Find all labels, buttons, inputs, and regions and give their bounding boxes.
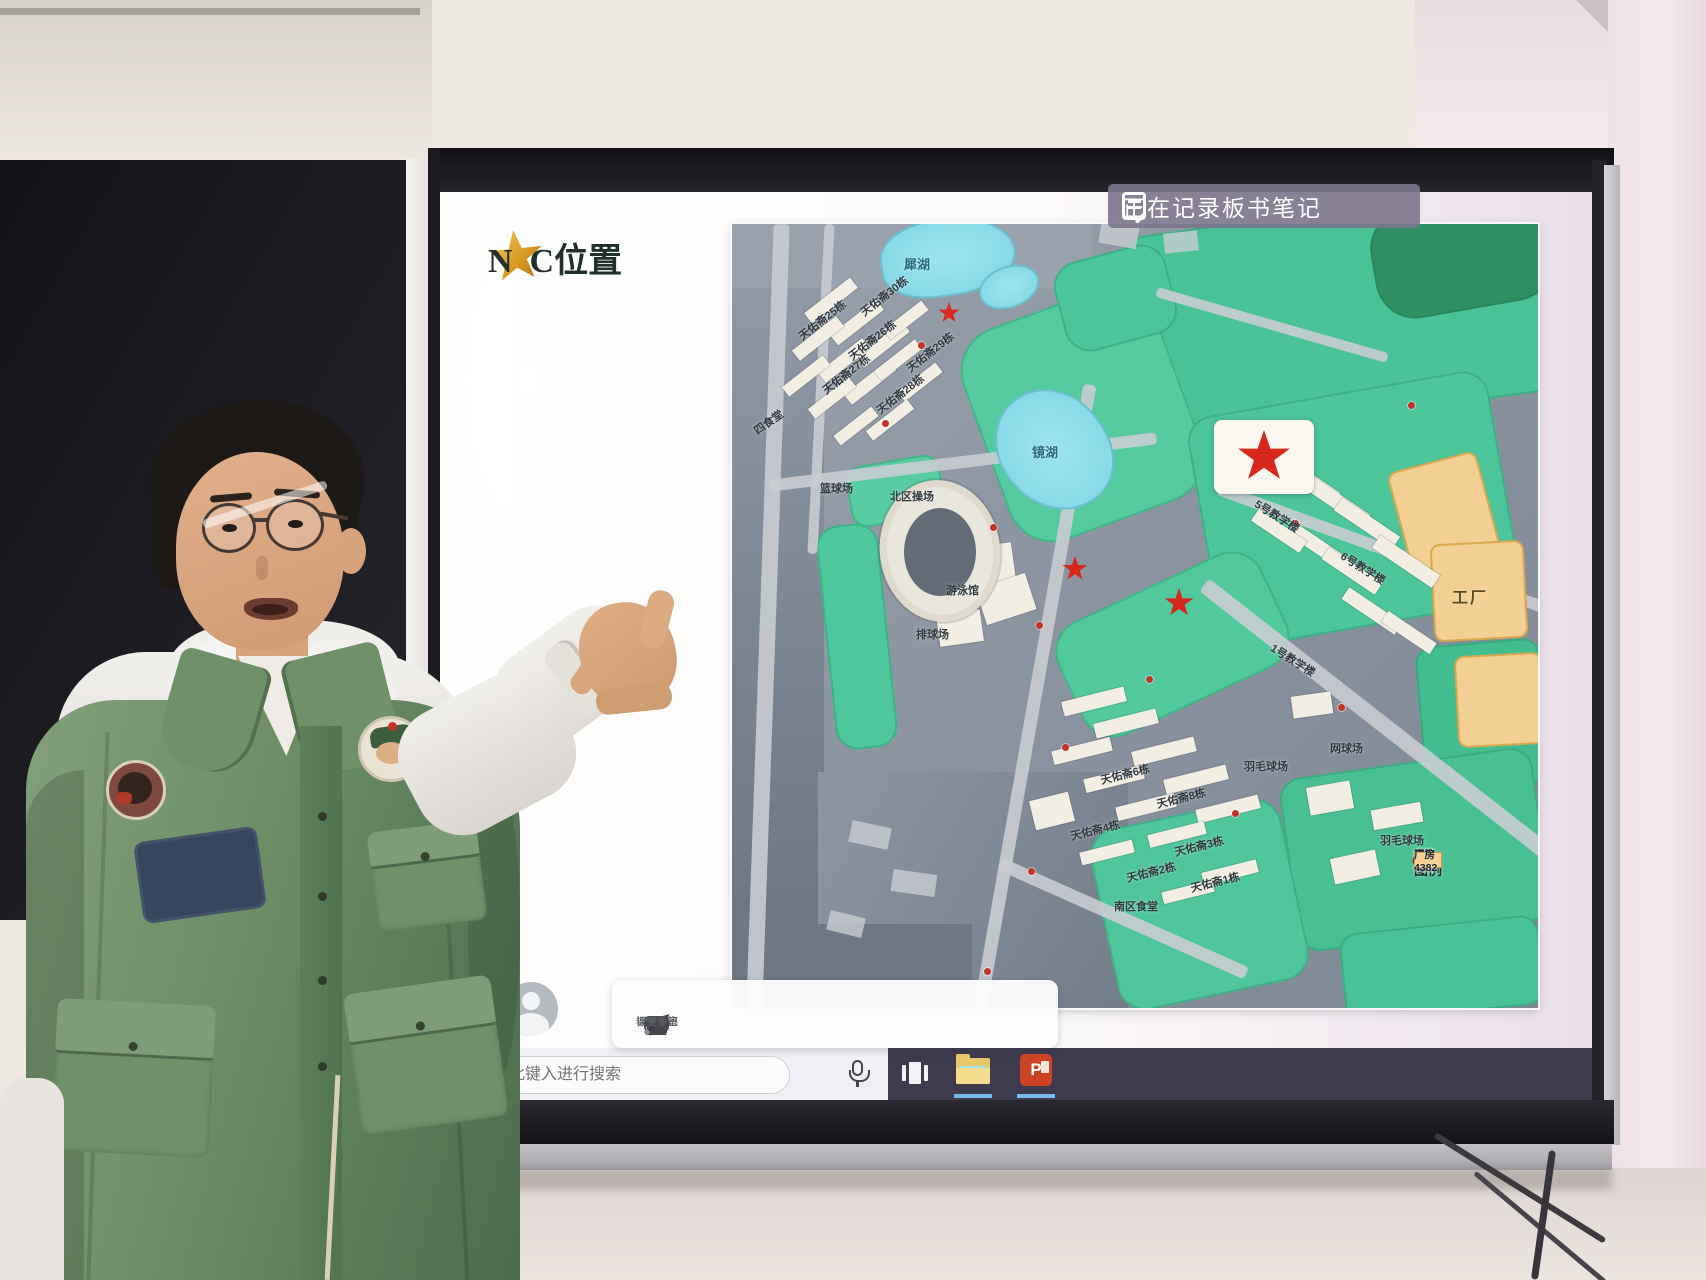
tv-shadow <box>432 1168 1612 1190</box>
taskbar <box>888 1048 1592 1100</box>
wall <box>0 0 432 170</box>
blackboard-panel <box>0 160 408 920</box>
taskbar-search[interactable] <box>478 1056 790 1094</box>
tv-bezel <box>428 148 1614 192</box>
active-app-indicator <box>954 1094 992 1098</box>
tv-bezel <box>432 1144 1612 1170</box>
map-label: 5号教学楼 <box>1252 496 1303 536</box>
powerpoint-letter: P <box>1030 1060 1041 1080</box>
vest-snap <box>318 1062 327 1071</box>
map-label: 四食堂 <box>750 406 786 438</box>
slide-title-row: N C位置 <box>488 222 808 292</box>
map-label: 天佑斋8栋 <box>1155 784 1208 812</box>
map-label: 犀湖 <box>904 254 930 273</box>
map-label: 天佑斋26栋 <box>845 316 899 363</box>
active-app-indicator <box>1017 1094 1055 1098</box>
campus-map: 犀湖镜湖篮球场北区操场游泳馆排球场网球场羽毛球场羽毛球场南区食堂四食堂工厂5号教… <box>732 224 1538 1008</box>
map-label: 南区食堂 <box>1114 898 1158 914</box>
map-label: 工厂 <box>1452 584 1488 608</box>
presenter-sleeve <box>0 1078 64 1280</box>
map-label: 网球场 <box>1330 740 1363 756</box>
wall-trim <box>0 8 420 15</box>
map-label: 天佑斋6栋 <box>1099 760 1152 788</box>
map-labels: 犀湖镜湖篮球场北区操场游泳馆排球场网球场羽毛球场羽毛球场南区食堂四食堂工厂5号教… <box>732 224 1538 1008</box>
map-label: 1号教学楼 <box>1268 640 1319 680</box>
map-label: 天佑斋4栋 <box>1069 816 1122 844</box>
map-label: 镜湖 <box>1032 442 1058 461</box>
map-label: 天佑斋1栋 <box>1189 868 1242 896</box>
task-view-icon[interactable] <box>902 1062 928 1084</box>
wall <box>1608 0 1706 1280</box>
map-label: 天佑斋3栋 <box>1173 832 1226 860</box>
toolbar-item-label: 更多 <box>647 1014 668 1029</box>
assistant-avatar[interactable] <box>504 982 558 1036</box>
map-label: 天佑斋27栋 <box>819 350 873 397</box>
search-input[interactable] <box>491 1065 731 1085</box>
map-label: 6号教学楼 <box>1338 548 1389 588</box>
map-label: 天佑斋29栋 <box>903 328 957 375</box>
vest-snap <box>318 976 327 985</box>
recording-banner-text: 正在记录板书笔记 <box>1122 189 1322 223</box>
map-label: 北区操场 <box>890 488 934 504</box>
recording-banner: 正在记录板书笔记 <box>1108 184 1420 228</box>
map-label: 游泳馆 <box>946 582 979 598</box>
map-label: 篮球场 <box>820 480 853 496</box>
map-label: 排球场 <box>916 626 949 642</box>
microphone-icon[interactable] <box>852 1060 863 1076</box>
slide-title: N C位置 <box>488 233 622 282</box>
tv-bezel <box>428 148 440 1144</box>
classroom-photo: 正在记录板书笔记 N C位置 犀湖镜湖篮球场北区操场游泳馆排球场网球场羽毛球场羽… <box>0 0 1706 1280</box>
map-label: 天佑斋28栋 <box>873 370 927 417</box>
drawstring <box>325 1075 341 1280</box>
map-label: 天佑斋2栋 <box>1125 858 1178 886</box>
legend-label: 厂房4382 <box>1414 847 1437 874</box>
powerpoint-icon[interactable]: P <box>1020 1054 1052 1086</box>
tv-bezel <box>1604 165 1620 1145</box>
file-explorer-icon[interactable] <box>956 1058 990 1084</box>
map-label: 天佑斋25栋 <box>795 296 849 343</box>
class-toolbar: 标注 板擦 聚光 课堂考察 QA 课堂问答 板书笔记 更多 <box>612 980 1058 1048</box>
vest-pocket <box>50 998 216 1158</box>
map-label: 天佑斋30栋 <box>857 272 911 319</box>
map-label: 羽毛球场 <box>1244 758 1288 774</box>
